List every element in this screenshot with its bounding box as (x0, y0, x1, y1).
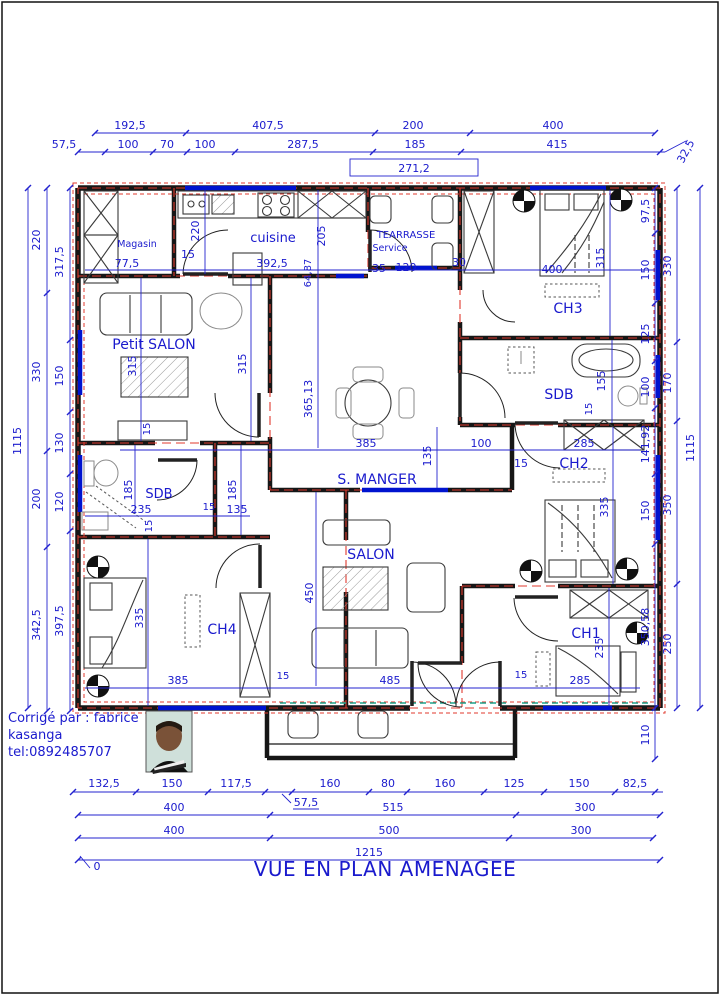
dim-left-outer: 1115 (11, 427, 24, 455)
dim-sm-b: 100 (471, 437, 492, 450)
dim-right-in-7: 110 (639, 725, 652, 746)
dim-right-in-5: 150 (639, 501, 652, 522)
dim-sdbr-w: 285 (574, 437, 595, 450)
dim-top2-6: 415 (547, 138, 568, 151)
dim-b1-2: 117,5 (220, 777, 252, 790)
credit-line2: kasanga (8, 728, 62, 743)
fan-icon (87, 556, 109, 578)
fan-icon (87, 675, 109, 697)
terrace-walls (267, 708, 515, 758)
ch1-furniture (536, 590, 648, 696)
dim-right-in-1: 150 (639, 260, 652, 281)
dim-left-in-1: 150 (53, 366, 66, 387)
ch2-furniture (545, 420, 644, 582)
dim-left-in-2: 130 (53, 433, 66, 454)
dim-ch1-h: 235 (593, 638, 606, 659)
dim-top1-0: 192,5 (114, 119, 146, 132)
interior-dimension-texts: 77,5 220 15 392,5 205 64,87 35 120 30 40… (115, 221, 611, 688)
dim-ps-h2: 315 (236, 354, 249, 375)
dim-top2-1: 100 (118, 138, 139, 151)
dim-right-in-2: 125 (639, 324, 652, 345)
dim-left-mid-2: 200 (30, 489, 43, 510)
dim-b3-2: 300 (571, 824, 592, 837)
dim-top1-1: 407,5 (252, 119, 284, 132)
dim-magasin-w: 77,5 (115, 257, 140, 270)
dim-sm-h: 365,13 (302, 380, 315, 419)
dim-right-mid-1: 170 (661, 373, 674, 394)
dim-left-mid-1: 330 (30, 362, 43, 383)
sdb-left-fixtures (82, 460, 146, 530)
dim-sdbl-w: 235 (131, 503, 152, 516)
dim-b1-5: 160 (435, 777, 456, 790)
dining-set (336, 367, 414, 439)
dim-cuisine-door: 15 (181, 248, 195, 261)
dim-ch2-h: 335 (598, 497, 611, 518)
dim-sdbr-b: 15 (584, 403, 595, 416)
dim-b1-1: 150 (162, 777, 183, 790)
room-petit-salon: Petit SALON (112, 337, 195, 353)
petit-salon-furniture (100, 293, 242, 440)
dim-sm-c: 15 (514, 457, 528, 470)
page-title: VUE EN PLAN AMENAGEE (254, 857, 517, 881)
room-ch3: CH3 (553, 301, 582, 317)
dim-left-in-4: 397,5 (53, 605, 66, 637)
floor-plan-sheet: 192,5 407,5 200 400 57,5 100 70 100 287,… (0, 0, 720, 996)
dim-right-in-0: 97,5 (639, 199, 652, 224)
author-photo (146, 711, 192, 774)
dim-top-right: 32,5 (674, 137, 697, 165)
dim-entrance: 271,2 (398, 162, 430, 175)
dim-sdbl-b: 185 (226, 480, 239, 501)
dim-ch4-w: 385 (168, 674, 189, 687)
room-ch2: CH2 (559, 456, 588, 472)
dim-right-mid-2: 350 (661, 495, 674, 516)
dim-sdbl-c: 15 (203, 502, 216, 513)
dim-terr-a: 35 (372, 262, 386, 275)
dim-cuisine-x: 64,87 (303, 259, 314, 288)
dim-b1-7: 150 (569, 777, 590, 790)
dim-b1-0: 132,5 (88, 777, 120, 790)
room-sdb-right: SDB (544, 387, 573, 403)
dim-right-mid-0: 330 (661, 256, 674, 277)
salon-furniture (312, 520, 445, 668)
dim-terr-c: 30 (452, 256, 466, 269)
dim-right-in-3: 100 (639, 377, 652, 398)
dim-sdbl-d: 135 (227, 503, 248, 516)
dim-b1-note: 57,5 (294, 796, 319, 809)
terrace-chairs (288, 711, 388, 738)
dim-sdbr-a: 155 (595, 371, 608, 392)
credit-line3: tel:0892485707 (8, 745, 112, 760)
dim-left-in-3: 120 (53, 492, 66, 513)
dim-b1-8: 82,5 (623, 777, 648, 790)
fan-icon (616, 558, 638, 580)
room-sdb-left: SDB (145, 487, 172, 502)
room-salon: SALON (347, 547, 395, 563)
dim-sdbl-e: 15 (144, 520, 155, 533)
fan-icon (610, 189, 632, 211)
dim-b2-1: 515 (383, 801, 404, 814)
dim-b1-6: 125 (504, 777, 525, 790)
dim-b2-0: 400 (164, 801, 185, 814)
dim-top2-4: 287,5 (287, 138, 319, 151)
fan-icon (520, 560, 542, 582)
dim-ch3-h: 315 (594, 248, 607, 269)
floor-plan-drawing: 192,5 407,5 200 400 57,5 100 70 100 287,… (0, 0, 720, 996)
credit-line1: Corrigé par : fabrice (8, 711, 139, 726)
dim-magasin-h: 220 (189, 221, 202, 242)
room-ch4: CH4 (207, 622, 236, 638)
dim-left-mid-0: 220 (30, 230, 43, 251)
dim-ch4-d: 15 (277, 671, 290, 682)
dim-ch3-w: 400 (542, 263, 563, 276)
dim-ch4-h: 335 (133, 608, 146, 629)
room-terrasse-1: TEARRASSE (376, 230, 436, 241)
dim-cuisine-w: 392,5 (256, 257, 288, 270)
dim-top2-0: 57,5 (52, 138, 77, 151)
room-terrasse-2: Service (372, 243, 407, 254)
dim-b1-3: 160 (320, 777, 341, 790)
dim-ps-h1: 315 (126, 356, 139, 377)
dim-left-in-0: 317,5 (53, 246, 66, 278)
room-s-manger: S. MANGER (337, 472, 417, 488)
dim-top2-5: 185 (405, 138, 426, 151)
dim-right-in-4: 141,92 (639, 425, 652, 464)
dim-sm-a: 135 (421, 446, 434, 467)
dim-sm-w: 385 (356, 437, 377, 450)
dim-b3-1: 500 (379, 824, 400, 837)
dim-b1-4: 80 (381, 777, 395, 790)
dim-terr-b: 120 (396, 261, 417, 274)
fan-icon (513, 190, 535, 212)
dim-right-in-6: 350,58 (639, 608, 652, 647)
magasin-shelves (84, 191, 118, 283)
dim-sdbl-a: 185 (122, 480, 135, 501)
dim-ps-d: 15 (142, 423, 153, 436)
dim-cuisine-h: 205 (315, 226, 328, 247)
dim-b3-0: 400 (164, 824, 185, 837)
dim-top2-3: 100 (195, 138, 216, 151)
dim-right-mid-3: 250 (661, 634, 674, 655)
dim-b2-2: 300 (575, 801, 596, 814)
dim-salon-w: 485 (380, 674, 401, 687)
dim-ch1-d: 15 (515, 670, 528, 681)
dim-origin: 0 (94, 860, 101, 873)
dim-top1-3: 400 (543, 119, 564, 132)
dim-salon-h: 450 (303, 583, 316, 604)
room-cuisine: cuisine (250, 231, 296, 246)
credit-block: Corrigé par : fabrice kasanga tel:089248… (8, 711, 139, 760)
dim-right-outer: 1115 (684, 434, 697, 462)
dim-ch1-w: 285 (570, 674, 591, 687)
dim-left-mid-3: 342,5 (30, 609, 43, 641)
sdb-right-fixtures (508, 344, 647, 406)
dim-top1-2: 200 (403, 119, 424, 132)
dim-top2-2: 70 (160, 138, 174, 151)
room-magasin: Magasin (117, 239, 156, 250)
